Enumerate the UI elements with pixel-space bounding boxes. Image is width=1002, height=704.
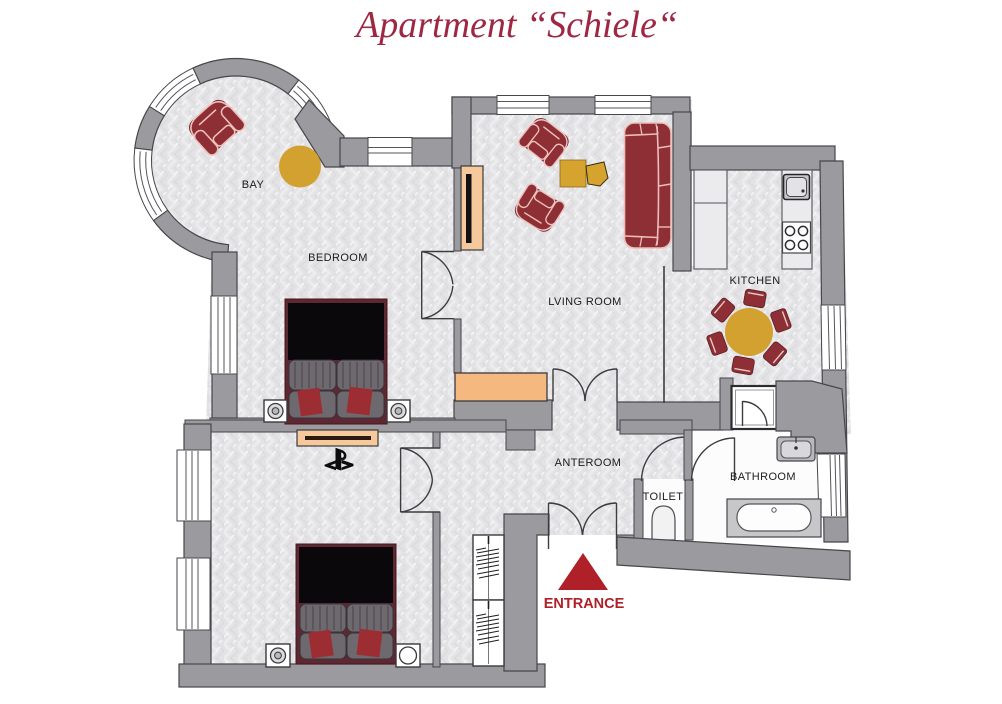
svg-text:Apartment “Schiele“: Apartment “Schiele“	[353, 4, 678, 46]
svg-text:KITCHEN: KITCHEN	[729, 275, 780, 287]
svg-text:LVING ROOM: LVING ROOM	[548, 296, 621, 308]
svg-text:BAY: BAY	[242, 179, 265, 191]
svg-text:ANTEROOM: ANTEROOM	[555, 457, 622, 469]
svg-text:ENTRANCE: ENTRANCE	[544, 596, 625, 612]
svg-text:BATHROOM: BATHROOM	[730, 471, 796, 483]
svg-text:BEDROOM: BEDROOM	[308, 252, 368, 264]
svg-text:TOILET: TOILET	[643, 491, 684, 503]
